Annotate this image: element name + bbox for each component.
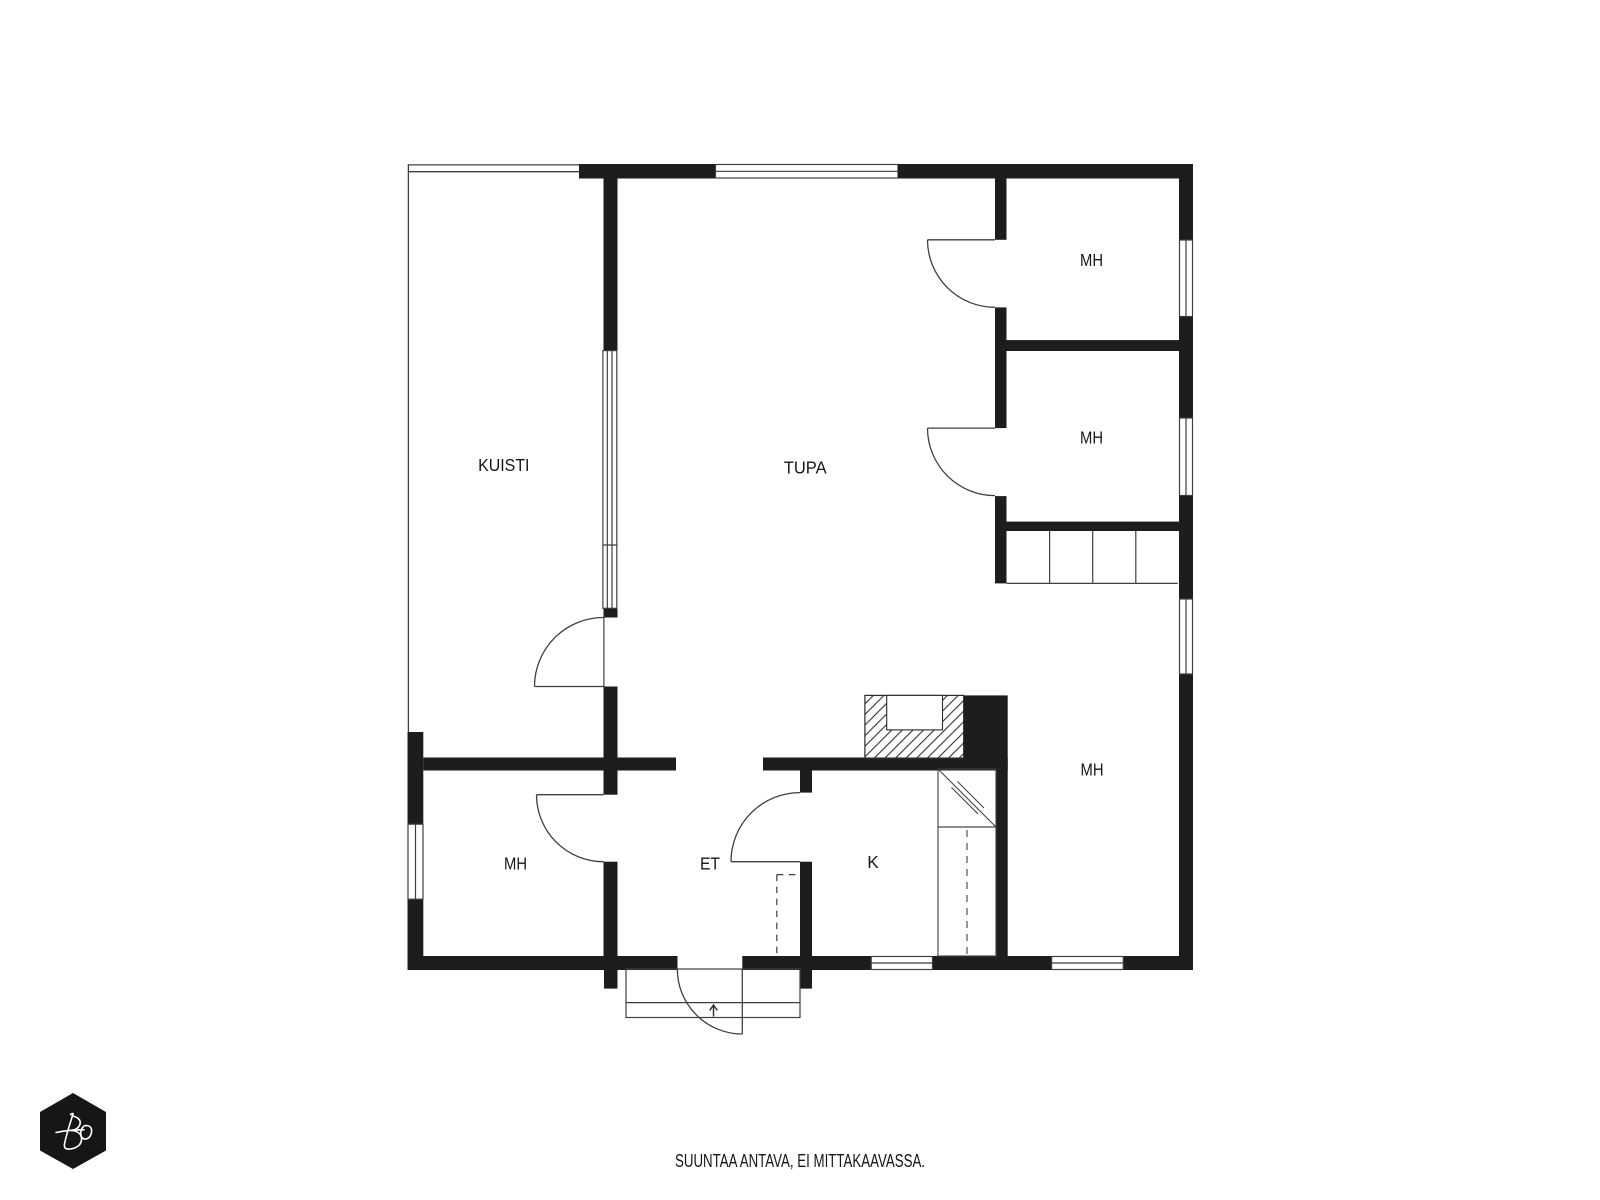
svg-text:MH: MH — [1081, 760, 1104, 780]
svg-text:MH: MH — [504, 854, 527, 874]
svg-text:SUUNTAA ANTAVA, EI MITTAKAAVAS: SUUNTAA ANTAVA, EI MITTAKAAVASSA. — [675, 1151, 925, 1171]
svg-text:TUPA: TUPA — [784, 458, 827, 478]
svg-text:MH: MH — [1080, 428, 1103, 448]
svg-text:KUISTI: KUISTI — [478, 455, 529, 475]
svg-text:ET: ET — [700, 854, 720, 874]
svg-text:K: K — [867, 852, 879, 872]
svg-text:MH: MH — [1080, 250, 1103, 270]
